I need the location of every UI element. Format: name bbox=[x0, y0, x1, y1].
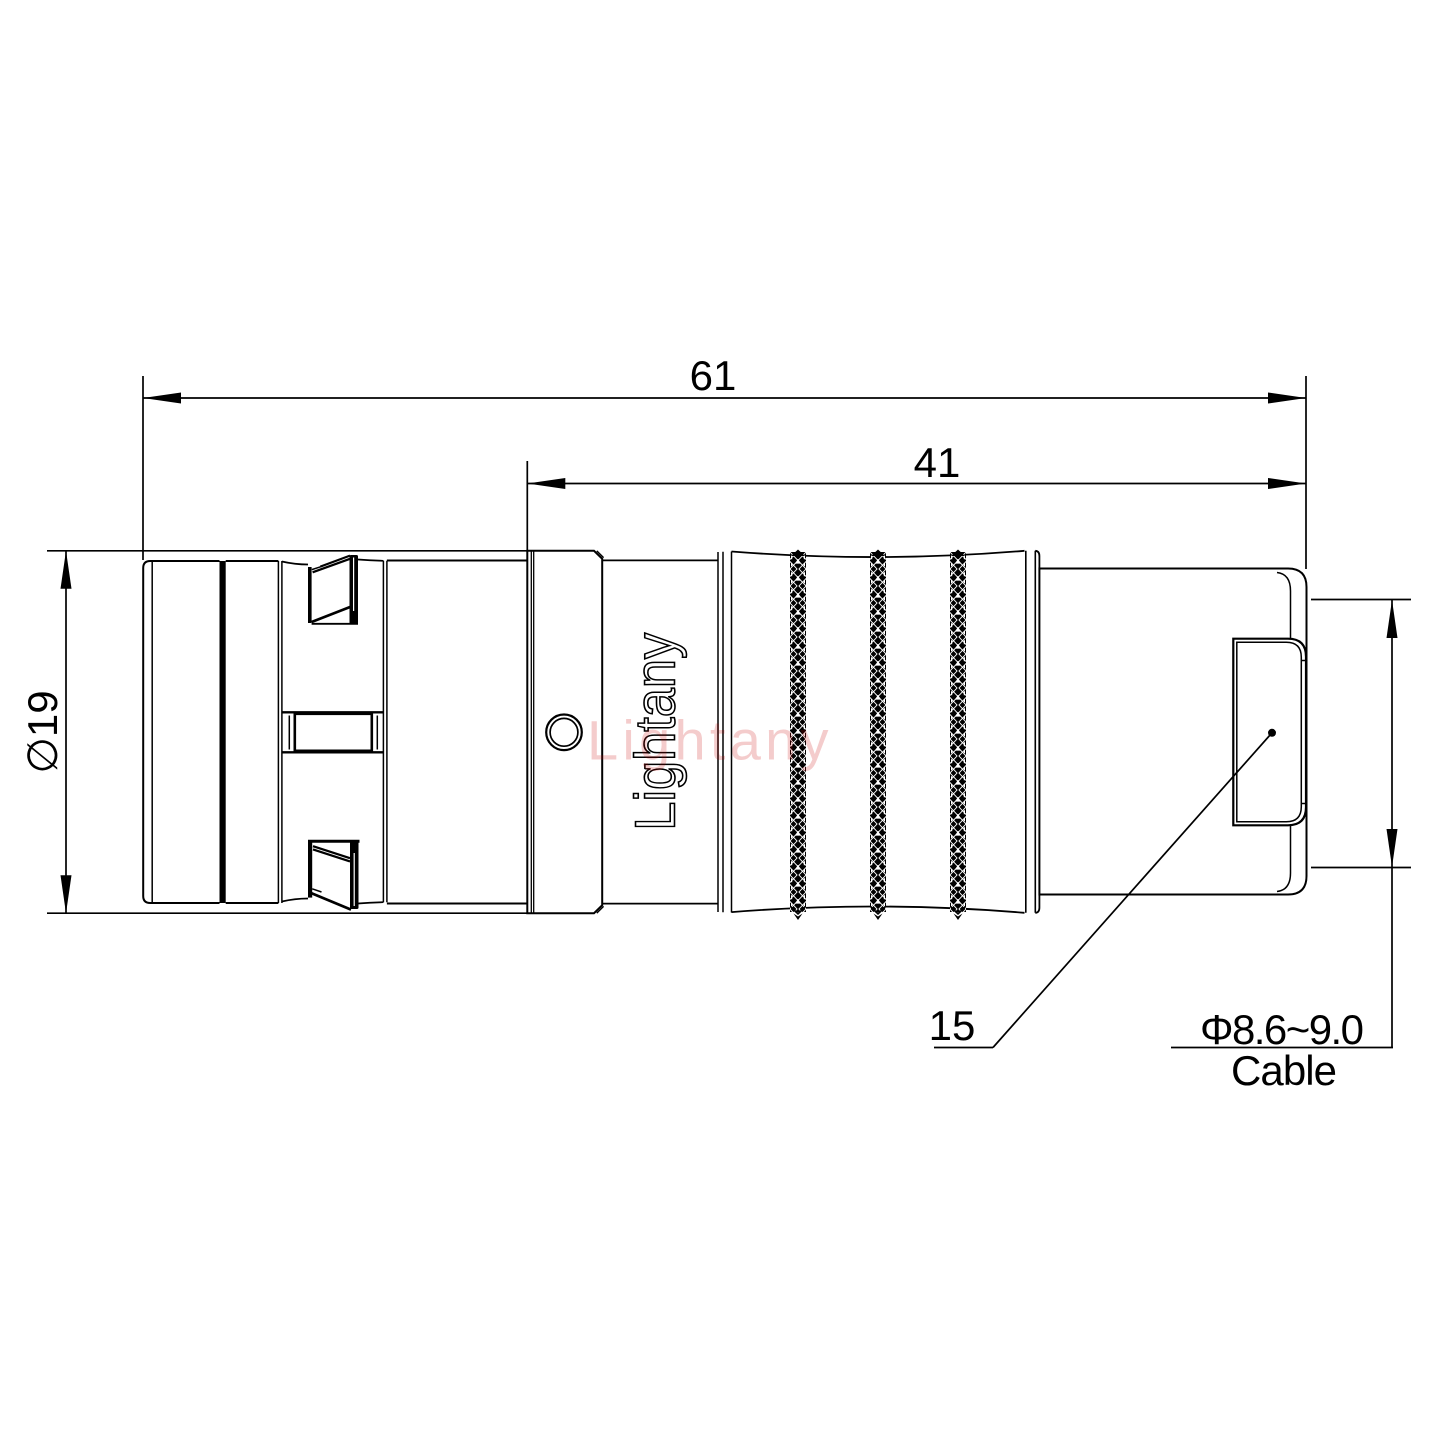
svg-text:61: 61 bbox=[690, 352, 737, 399]
svg-text:Cable: Cable bbox=[1231, 1047, 1337, 1094]
svg-text:41: 41 bbox=[914, 439, 961, 486]
svg-text:Φ8.6~9.0: Φ8.6~9.0 bbox=[1200, 1006, 1364, 1053]
svg-text:15: 15 bbox=[929, 1002, 976, 1049]
svg-text:∅19: ∅19 bbox=[19, 690, 66, 773]
